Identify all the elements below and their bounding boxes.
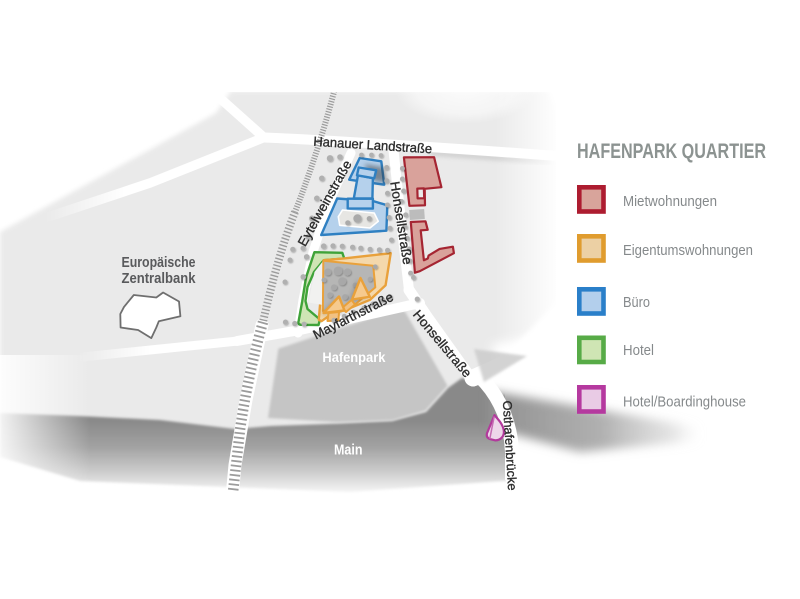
svg-text:Hafenpark: Hafenpark (322, 350, 385, 365)
svg-text:Hotel: Hotel (623, 342, 654, 359)
svg-text:Europäische: Europäische (122, 255, 196, 271)
svg-text:Büro: Büro (623, 294, 650, 311)
svg-text:Mietwohnungen: Mietwohnungen (623, 193, 717, 210)
svg-text:Main: Main (334, 443, 363, 459)
svg-text:HAFENPARK QUARTIER: HAFENPARK QUARTIER (577, 140, 766, 163)
svg-text:Hotel/Boardinghouse: Hotel/Boardinghouse (623, 393, 746, 410)
svg-text:Zentralbank: Zentralbank (122, 271, 197, 287)
svg-text:Eigentumswohnungen: Eigentumswohnungen (623, 242, 753, 259)
